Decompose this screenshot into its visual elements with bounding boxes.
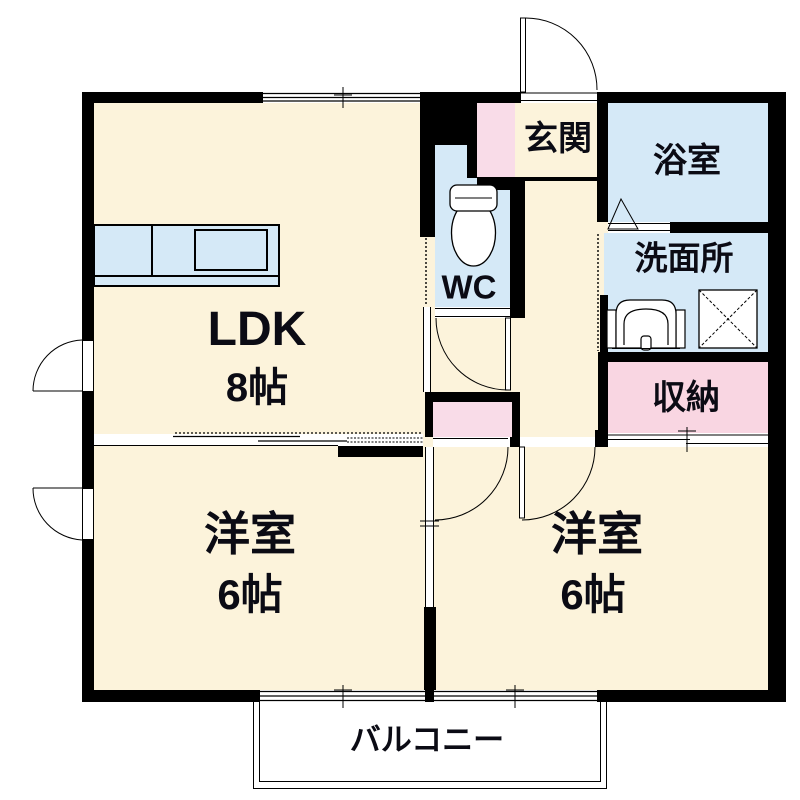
label-bath: 浴室 — [653, 144, 721, 178]
wall-left-1 — [82, 103, 94, 340]
window-ldk-top — [263, 92, 420, 103]
label-washroom: 洗面所 — [635, 242, 734, 275]
wall-bottom-post — [425, 690, 434, 702]
wall-door-sep — [510, 437, 520, 447]
label-ldk: LDK — [208, 306, 307, 354]
label-balcony: バルコニー — [350, 725, 504, 756]
window-bedroom-left — [260, 690, 425, 702]
floor-plan: LDK 8帖 洋室 6帖 洋室 6帖 玄関 浴室 洗面所 収納 WC バルコニー — [0, 0, 800, 800]
wall-entry-sliver — [467, 145, 477, 178]
opening-bath-door — [608, 222, 670, 233]
opening-closet-door — [433, 437, 510, 447]
opening-wc-door — [435, 307, 510, 318]
entrance-opening — [521, 92, 597, 103]
sliding-partition-ldk — [94, 434, 423, 446]
wall-partition-lower — [424, 607, 436, 690]
label-bedroom-left-size: 6帖 — [217, 574, 282, 616]
wall-closet-top — [425, 392, 520, 402]
opening-bedroom-right-door — [520, 437, 595, 447]
sliding-door-storage — [608, 433, 768, 447]
wall-wash-bottom — [598, 352, 768, 362]
kitchen-counter-line — [94, 275, 279, 277]
label-wc: WC — [442, 271, 497, 304]
wall-bath-bottom — [670, 222, 768, 233]
label-bedroom-right-size: 6帖 — [560, 574, 625, 616]
wall-storage-left — [598, 362, 608, 447]
kitchen-sink — [194, 229, 268, 271]
label-ldk-size: 8帖 — [226, 368, 288, 408]
label-bedroom-right: 洋室 — [551, 511, 643, 557]
wall-ldk-hall-thin — [423, 307, 431, 392]
wall-right — [768, 103, 786, 702]
label-bedroom-left: 洋室 — [204, 511, 296, 557]
wall-wc-right — [510, 178, 525, 318]
label-entrance: 玄関 — [524, 122, 592, 156]
wall-bottom-right — [597, 690, 786, 702]
wall-entry-block — [435, 92, 477, 145]
wall-closet-left — [425, 402, 433, 437]
wall-bath-left — [597, 103, 608, 222]
wall-wash-left-stub — [600, 295, 608, 352]
entrance-step-line — [523, 177, 597, 181]
wall-left-2 — [82, 392, 94, 488]
wall-bottom-left — [82, 690, 260, 702]
wall-left-3 — [82, 540, 94, 690]
wall-top-left — [82, 92, 263, 103]
closet-central — [433, 402, 512, 437]
entrance-door-arc — [521, 18, 598, 92]
window-bedroom-right — [434, 690, 597, 702]
kitchen-counter-divider — [151, 226, 153, 277]
partition-bedrooms — [425, 447, 434, 607]
wall-ldk-hall — [420, 92, 435, 237]
wall-top-right — [597, 92, 786, 103]
label-storage: 収納 — [652, 381, 720, 415]
shoe-cabinet — [477, 103, 515, 177]
